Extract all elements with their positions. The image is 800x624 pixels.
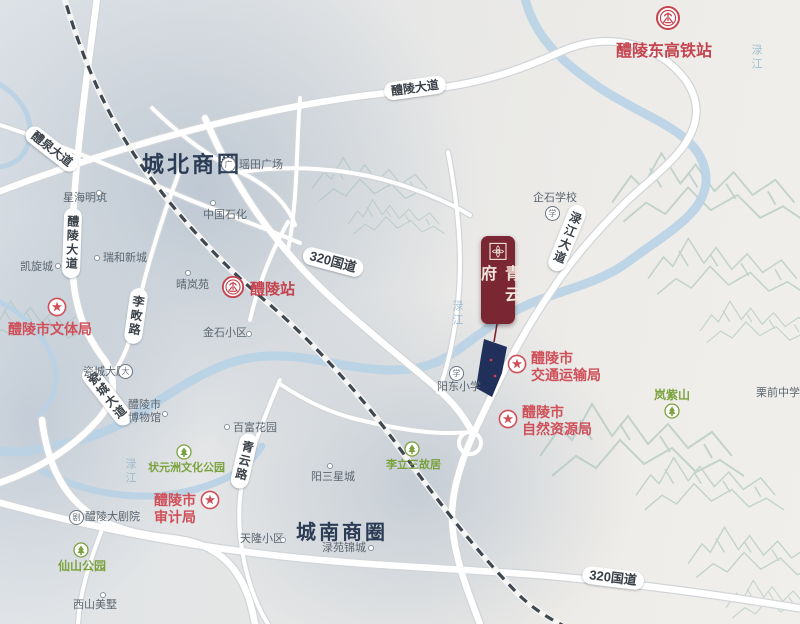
tree-icon-lilisan-residence: [404, 441, 420, 457]
park-label-zhuangyuanzhou: 状元洲文化公园: [148, 459, 225, 475]
zone-label-south: 城南商圈: [296, 516, 388, 545]
place-dot-sinopec: [210, 200, 216, 206]
place-label-ruihexincheng: 瑞和新城: [103, 252, 147, 265]
gov-label-transport-bureau: 醴陵市 交通运输局: [531, 350, 601, 384]
river-label-lujiang-north: 渌江: [748, 44, 764, 72]
place-dot-museum: [162, 411, 168, 417]
project-marker-qingyunfu: 青云府: [481, 236, 515, 324]
tree-icon-lanzishan: [664, 403, 680, 419]
place-dot-tianlongxiaoqu: [280, 537, 286, 543]
place-label-yangsanxingcheng: 阳三星城: [311, 471, 355, 484]
theater-icon-grand-theater: 剧: [69, 510, 84, 525]
school-label-qishi: 企石学校: [533, 192, 577, 205]
gov-line1: 醴陵市文体局: [8, 321, 92, 338]
place-label-museum: 醴陵市 博物馆: [128, 399, 161, 425]
location-map: 城北商圈 城南商圈 醴陵大道 醴泉大道 醴陵大道 320国道 渌江大道 李畋路 …: [0, 0, 800, 624]
project-name-label: 青云府: [474, 265, 522, 324]
tower-icon-cichengdasha: 大: [118, 364, 133, 379]
station-label-east-hsr: 醴陵东高铁站: [616, 37, 712, 61]
star-icon-audit-bureau: [200, 490, 220, 510]
place-label-sinopec: 中国石化: [203, 209, 247, 222]
tree-icon-zhuangyuanzhou: [176, 444, 192, 460]
star-icon-culture-sports: [47, 297, 67, 317]
project-emblem-icon: [488, 242, 508, 261]
place-label-grand-theater: 醴陵大剧院: [85, 511, 140, 524]
place-dot-kaixuancheng: [55, 263, 61, 269]
gov-label-audit-bureau: 醴陵市 审计局: [154, 492, 196, 526]
place-dot-xishanmeishu: [100, 592, 106, 598]
place-dot-qinglanyuan: [185, 270, 191, 276]
river-group: [0, 0, 706, 496]
river-label-lujiang-west: 渌江: [122, 458, 138, 486]
poi-label-lilisan-residence: 李立三故居: [386, 456, 441, 472]
gov-line1: 醴陵市: [154, 492, 196, 509]
school-label-yangdong: 阳东小学: [437, 381, 481, 394]
gov-line2: 审计局: [154, 509, 196, 526]
place-label-baifuhuayuan: 百富花园: [233, 422, 277, 435]
gov-label-natural-resources: 醴陵市 自然资源局: [522, 404, 592, 438]
museum-line2: 博物馆: [128, 412, 161, 425]
place-label-tianlongxiaoqu: 天隆小区: [240, 533, 284, 546]
place-dot-baifuhuayuan: [224, 424, 230, 430]
tree-icon-xianshan-park: [73, 542, 89, 558]
place-label-yaotian-plaza: 瑶田广场: [239, 159, 283, 172]
park-label-xianshan: 仙山公园: [58, 557, 106, 574]
plaza-icon-yaotian: 广: [221, 157, 236, 172]
gov-line1: 醴陵市: [522, 404, 592, 421]
river-label-lujiang-center: 渌江: [449, 300, 465, 328]
place-label-kaixuancheng: 凯旋城: [20, 261, 53, 274]
place-dot-jinshixiaoqu: [246, 331, 252, 337]
place-dot-luyuanjincheng: [368, 545, 374, 551]
place-label-qinglanyuan: 晴岚苑: [176, 279, 209, 292]
school-label-liqian: 栗前中学: [756, 387, 800, 400]
station-label-liling: 醴陵站: [250, 278, 295, 299]
gov-line1: 醴陵市: [531, 350, 601, 367]
place-dot-xinghaimingzhu: [96, 190, 102, 196]
place-label-xishanmeishu: 西山美墅: [73, 599, 117, 612]
place-label-luyuanjincheng: 渌苑锦城: [322, 542, 366, 555]
star-icon-natural-resources: [498, 409, 518, 429]
museum-line1: 醴陵市: [128, 399, 161, 412]
place-label-jinshixiaoqu: 金石小区: [203, 327, 247, 340]
place-dot-ruihexincheng: [94, 255, 100, 261]
rail-station-icon-east: [655, 5, 681, 31]
gov-line2: 交通运输局: [531, 367, 601, 384]
school-icon-qishi: 学: [545, 206, 560, 221]
rail-station-icon-liling: [221, 275, 245, 299]
road-label-liling-avenue-left: 醴陵大道: [62, 208, 82, 279]
gov-label-culture-sports: 醴陵市文体局: [8, 321, 92, 338]
star-icon-transport-bureau: [507, 354, 527, 374]
mountain-label-lanzishan: 岚紫山: [654, 386, 690, 403]
place-dot-yangsanxingcheng: [327, 463, 333, 469]
school-icon-yangdong: 学: [449, 366, 464, 381]
gov-line2: 自然资源局: [522, 421, 592, 438]
